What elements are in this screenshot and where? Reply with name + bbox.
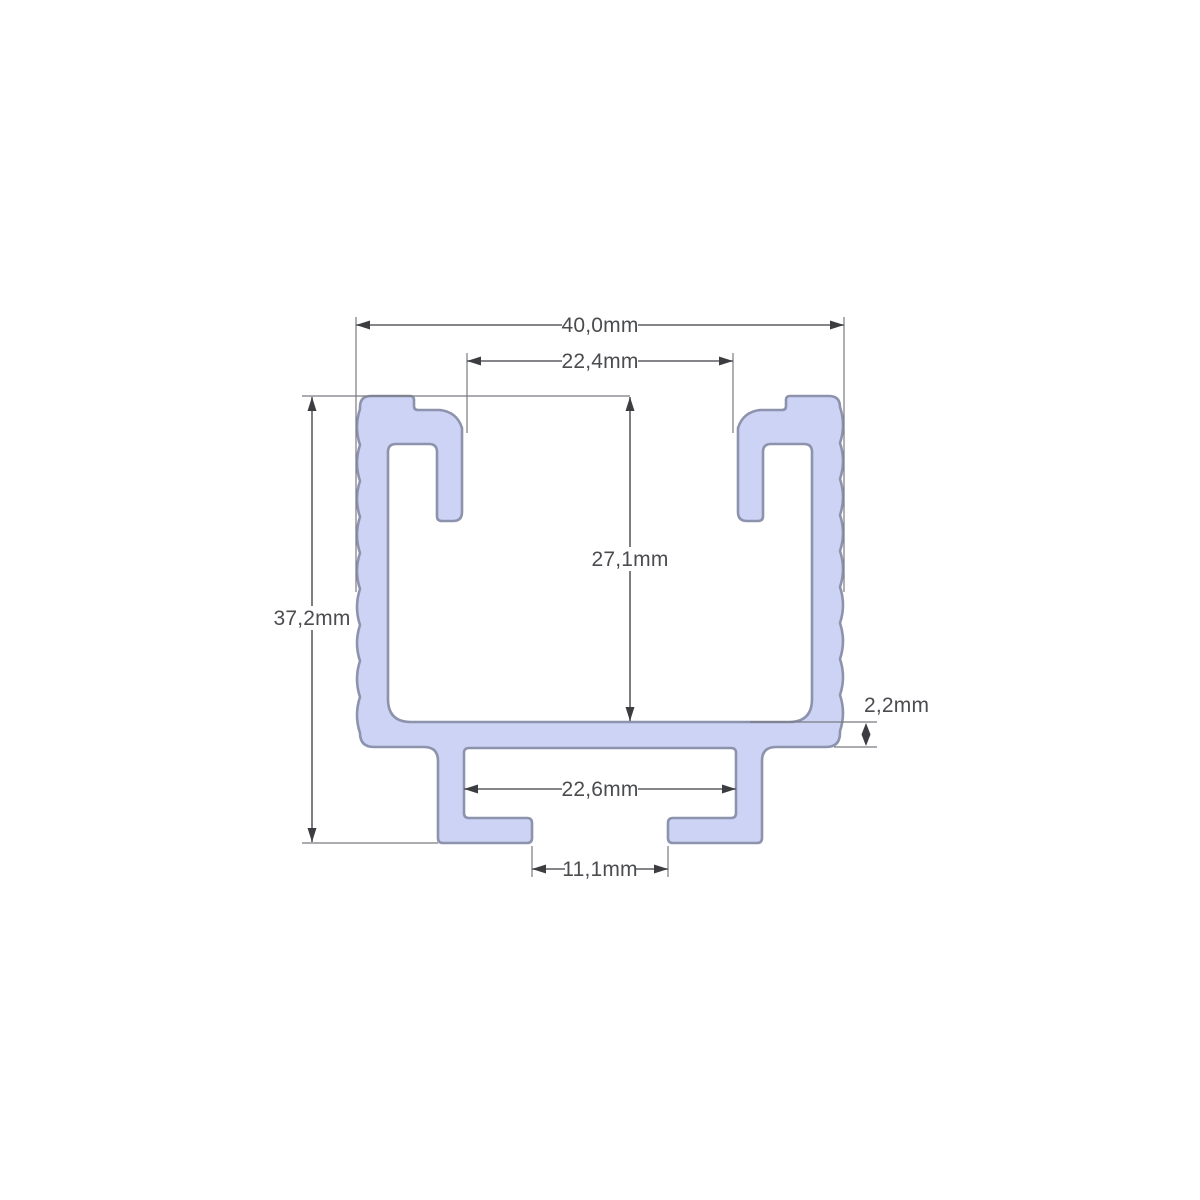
dimension-label-bottom-channel-width: 22,6mm — [561, 778, 638, 801]
arrowhead-up — [308, 397, 317, 411]
arrowhead-right — [654, 865, 668, 874]
arrowhead-left — [467, 357, 481, 366]
dimension-label-base-thickness: 2,2mm — [864, 694, 929, 717]
arrowhead-left — [532, 865, 546, 874]
dimension-label-bottom-slot-opening: 11,1mm — [562, 858, 638, 881]
dimension-label-overall-height: 37,2mm — [273, 607, 350, 630]
dimension-bottom-slot-opening: 11,1mm — [532, 846, 668, 881]
dimension-label-top-opening-width: 22,4mm — [561, 350, 638, 373]
arrowhead-up — [862, 723, 871, 735]
arrowhead-down — [626, 707, 635, 721]
dimension-label-inner-depth: 27,1mm — [591, 548, 668, 571]
dimension-label-overall-width: 40,0mm — [561, 314, 638, 337]
dimension-bottom-channel-width: 22,6mm — [464, 778, 736, 801]
arrowhead-up — [626, 397, 635, 411]
arrowhead-right — [722, 785, 736, 794]
drawing-canvas: 40,0mm 22,4mm 27,1mm 37,2mm — [0, 0, 1200, 1200]
dimension-top-opening-width: 22,4mm — [467, 350, 733, 433]
dimension-overall-height: 37,2mm — [273, 397, 350, 842]
arrowhead-down — [308, 828, 317, 842]
arrowhead-down — [862, 735, 871, 747]
arrowhead-left — [464, 785, 478, 794]
rail-profile-shape — [357, 396, 843, 843]
dimension-inner-depth: 27,1mm — [591, 397, 668, 721]
arrowhead-right — [830, 321, 844, 330]
arrowhead-left — [356, 321, 370, 330]
arrowhead-right — [719, 357, 733, 366]
rail-profile-drawing: 40,0mm 22,4mm 27,1mm 37,2mm — [0, 0, 1200, 1200]
